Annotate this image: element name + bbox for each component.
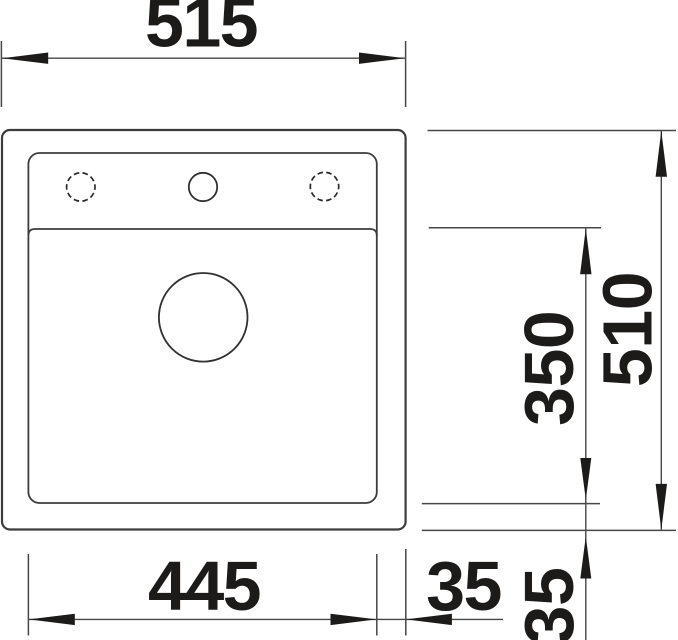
svg-text:515: 515 <box>145 0 257 62</box>
svg-text:445: 445 <box>148 547 260 625</box>
svg-text:35: 35 <box>510 568 588 640</box>
svg-text:350: 350 <box>510 311 588 426</box>
svg-text:35: 35 <box>426 547 501 625</box>
svg-text:510: 510 <box>588 272 666 387</box>
